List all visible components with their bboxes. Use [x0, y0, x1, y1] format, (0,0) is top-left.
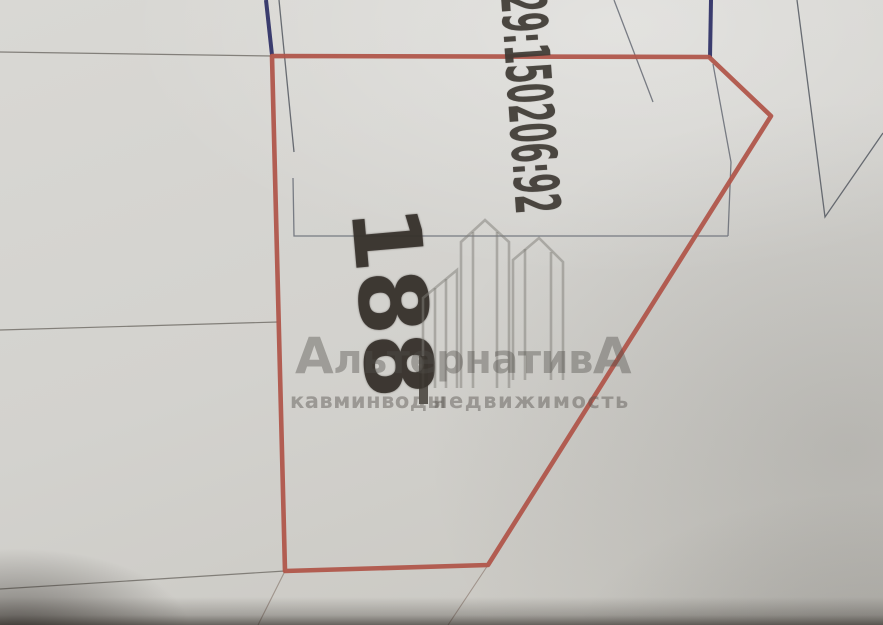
survey-diagonal-lines — [279, 0, 883, 217]
boundary-continuation-lines — [258, 565, 488, 625]
adjacent-parcel-lines-left — [0, 52, 285, 589]
cadastral-plan-scan: 29:150206:92 188 АльтернативА кавминводы… — [0, 0, 883, 625]
cadastral-number-label: 29:150206:92 — [486, 0, 574, 216]
plot-number-stamp: 188 — [328, 202, 453, 401]
